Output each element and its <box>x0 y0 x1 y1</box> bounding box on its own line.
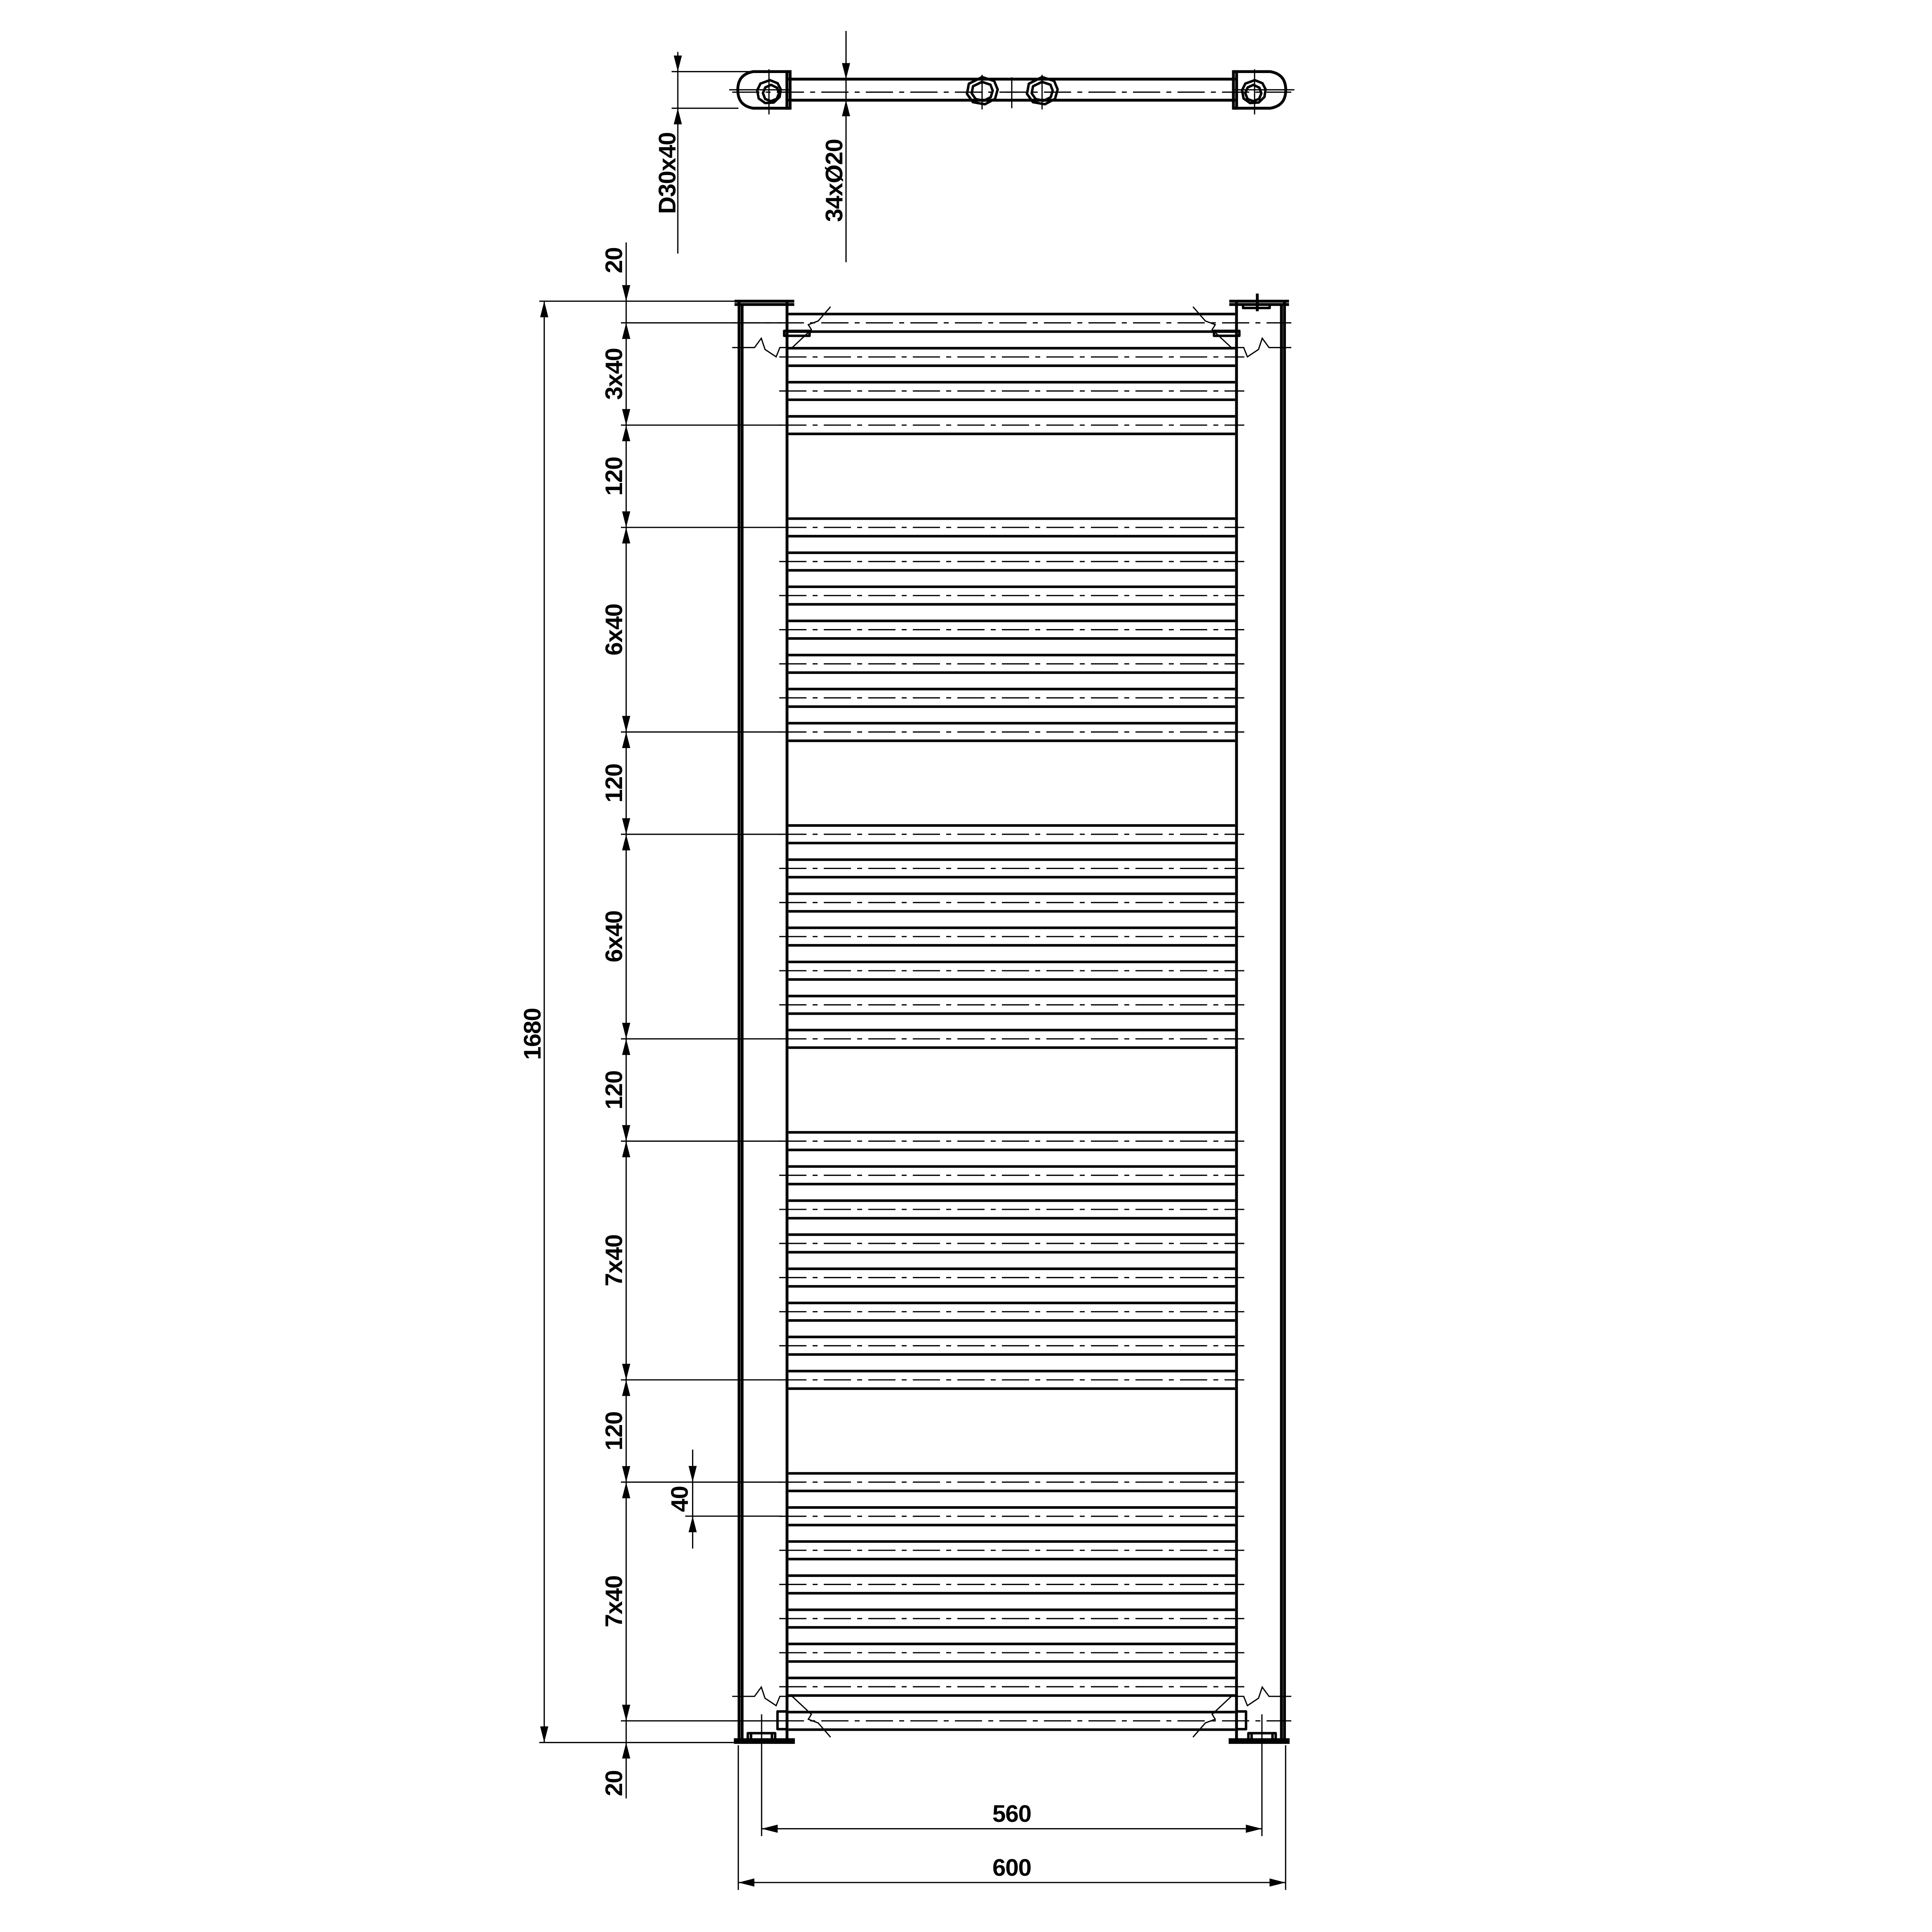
top-view-right-bracket <box>1233 69 1294 114</box>
dim-line <box>685 1450 782 1549</box>
overall-height-label: 1680 <box>519 1008 546 1060</box>
bracket-break-lines <box>732 338 1291 1706</box>
chain-dimension-label: 120 <box>601 457 628 496</box>
aux-pitch-label: 40 <box>667 1486 693 1512</box>
outer-width-label: 600 <box>992 1854 1031 1881</box>
chain-dimension-label: 6x40 <box>601 911 628 963</box>
chain-dimension-label: 7x40 <box>601 1576 628 1628</box>
top-view: D30x40 34xØ20 <box>654 31 1294 262</box>
chain-dimension-label: 20 <box>601 247 628 273</box>
dimension-chain: 203x401206x401206x401207x401207x4020 <box>539 242 782 1798</box>
bracket-hole-inner <box>763 85 779 101</box>
chain-dimension-label: 6x40 <box>601 604 628 656</box>
dimension-inner-width: 560 <box>762 1714 1262 1836</box>
dim-line <box>672 52 754 253</box>
inner-width-label: 560 <box>992 1801 1031 1827</box>
dimension-overall-height: 1680 <box>519 301 548 1742</box>
chain-dimension-label: 20 <box>601 1770 628 1796</box>
chain-dimension-label: 7x40 <box>601 1235 628 1286</box>
chain-dimension-label: 120 <box>601 1412 628 1450</box>
corner-break-marks <box>792 307 1231 1737</box>
rung-dim-label: 34xØ20 <box>821 139 848 222</box>
chain-dimension-label: 3x40 <box>601 348 628 400</box>
radiator-technical-drawing: D30x40 34xØ20 <box>0 0 1932 1932</box>
chain-labels: 203x401206x401206x401207x401207x4020 <box>601 247 628 1796</box>
bracket-hole-inner <box>1245 85 1262 101</box>
mount-feet <box>748 1733 1276 1740</box>
chain-extension-lines <box>539 301 782 1742</box>
dimension-aux-pitch: 40 <box>667 1450 782 1549</box>
dimension-rungs-34xO20: 34xØ20 <box>821 31 850 262</box>
profile-dim-label: D30x40 <box>654 133 681 214</box>
rung-tubes <box>732 314 1291 1730</box>
chain-dimension-label: 120 <box>601 1071 628 1109</box>
chain-dimension-label: 120 <box>601 764 628 803</box>
front-view <box>732 295 1291 1742</box>
